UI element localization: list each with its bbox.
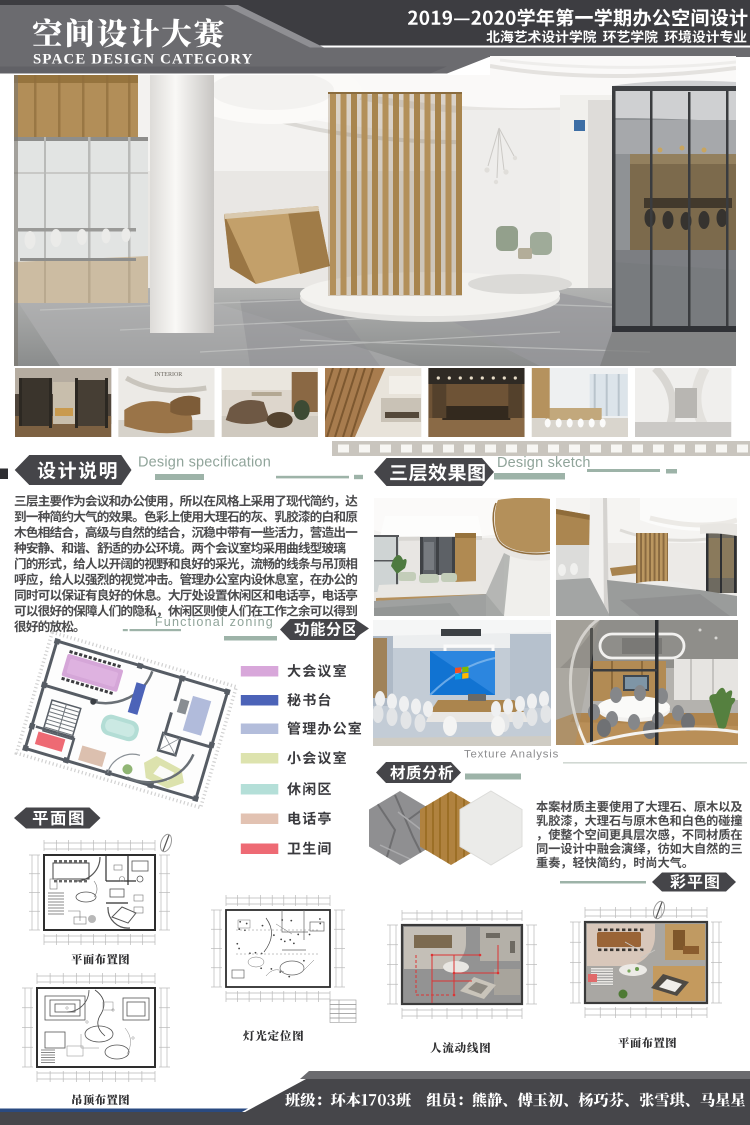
svg-text:Design sketch: Design sketch: [497, 455, 591, 471]
svg-text:SPACE DESIGN CATEGORY: SPACE DESIGN CATEGORY: [33, 52, 254, 68]
svg-text:Functional zoning: Functional zoning: [155, 615, 274, 629]
svg-text:Texture Analysis: Texture Analysis: [464, 749, 559, 761]
svg-text:INTERIOR: INTERIOR: [154, 372, 182, 378]
svg-text:Design specification: Design specification: [138, 455, 271, 471]
